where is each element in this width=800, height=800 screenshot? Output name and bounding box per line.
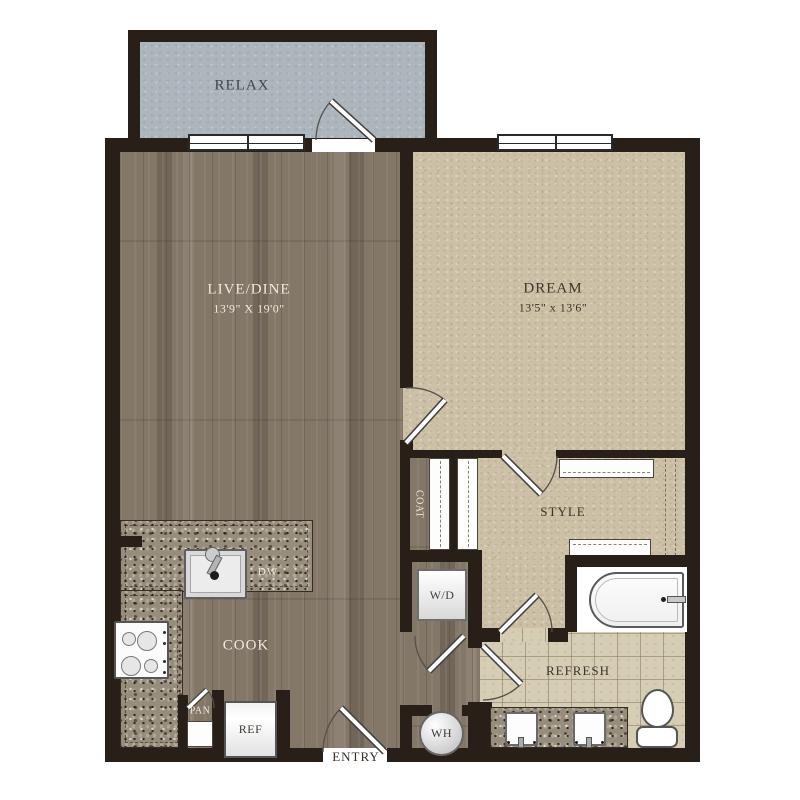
living-window [188,134,305,151]
coat-closet-label: COAT [414,490,425,518]
style-door-patch [502,450,556,458]
coat-closet-shelf [429,458,450,550]
balcony-door-opening [312,139,375,152]
refrigerator-label: REF [239,722,263,737]
living-dims: 13'9" X 19'0" [213,302,284,317]
tub-faucet-dot [661,597,666,602]
living-label: LIVE/DINE [207,282,290,299]
style-closet-shelf-top [559,459,654,478]
vanity-faucet [586,737,592,748]
wall-mid-left [400,450,502,458]
style-closet-shelf-left [457,458,478,550]
stove-knob [163,660,166,663]
toilet-tank [636,726,678,748]
tub-faucet [667,596,686,603]
style-closet-label: STYLE [540,504,585,520]
closet-rod [468,461,469,547]
wall-coat-style-divider [450,458,457,550]
wall-outer-bottom-left [105,748,323,762]
wall-wh-right [468,702,492,762]
wall-mid-right [556,450,685,458]
wall-style-bath-stub-left [482,628,500,642]
wall-closet-cross [400,550,482,562]
closet-rod [573,544,647,545]
pantry-shelf [187,721,213,747]
vanity-faucet [518,737,524,748]
balcony-wall-top [128,30,437,42]
wall-coat-left [400,458,410,550]
window-divider [555,136,557,149]
wall-fridge-right [276,690,290,748]
stove-knob [163,671,166,674]
toilet-bowl [641,689,674,728]
vanity-dot [575,741,578,744]
wall-pantry-fridge [212,690,224,748]
wall-wh-top-left [400,705,432,716]
wall-tub-top [565,555,687,567]
bedroom-label: DREAM [523,281,582,298]
washer-dryer-label: W/D [430,588,455,603]
vanity-dot [507,741,510,744]
style-closet-rod-right [665,459,666,556]
vanity-dot [533,741,536,744]
burner [121,656,141,676]
water-heater-label: WH [431,726,452,741]
vanity-dot [601,741,604,744]
closet-rod [440,461,441,547]
burner [122,632,136,646]
water-heater: WH [419,711,464,756]
balcony-wall-right [425,30,437,140]
sink-drain [210,571,219,580]
bath-door-patch [500,628,548,642]
burner [144,659,158,673]
stove-knob [163,642,166,645]
dishwasher-label: DW [258,566,278,578]
bedroom-door-patch [403,388,413,443]
wall-kitchen-stub [107,536,142,547]
stove [114,621,169,679]
burner [137,631,157,651]
wall-living-bedroom [400,152,413,388]
bath-label: REFRESH [546,663,610,679]
balcony-floor [140,42,425,140]
wall-wd-right [468,562,482,648]
balcony-wall-left [128,30,140,140]
kitchen-label: COOK [223,638,270,655]
closet-rod [563,472,650,473]
floor-plan: W/D WH REF [0,0,800,800]
bedroom-window [497,134,613,151]
stove-knob [163,631,166,634]
balcony-label: RELAX [215,78,270,95]
pantry-label: PAN [190,706,211,717]
washer-dryer: W/D [417,569,467,621]
entry-label: ENTRY [332,749,380,765]
style-closet-rod-right [675,459,676,556]
wall-outer-right [685,138,700,762]
wall-wd-left [400,562,412,632]
refrigerator: REF [224,701,277,758]
window-divider [247,136,249,149]
bedroom-dims: 13'5" x 13'6" [519,301,588,316]
